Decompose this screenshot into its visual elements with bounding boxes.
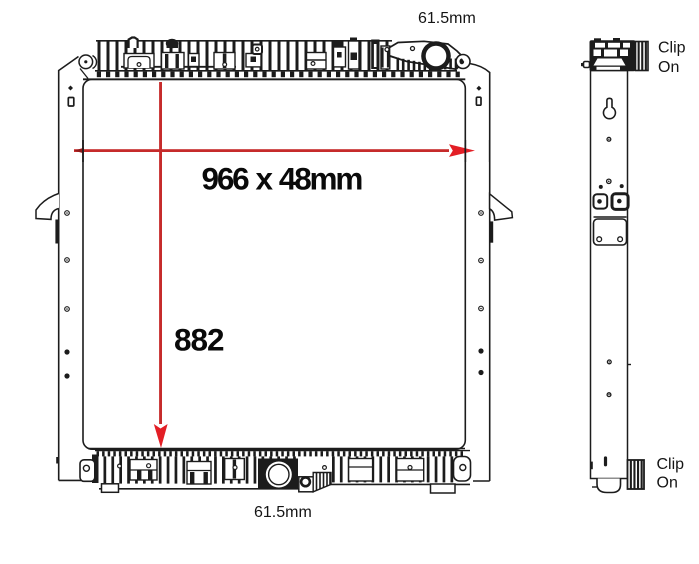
svg-text:On: On	[658, 59, 679, 76]
svg-text:882: 882	[174, 321, 224, 357]
svg-text:61.5mm: 61.5mm	[418, 10, 476, 27]
svg-text:966 x 48mm: 966 x 48mm	[202, 161, 363, 197]
svg-text:Clip: Clip	[657, 456, 685, 473]
svg-text:61.5mm: 61.5mm	[254, 504, 312, 521]
svg-text:On: On	[657, 475, 678, 492]
svg-text:Clip: Clip	[658, 39, 686, 56]
